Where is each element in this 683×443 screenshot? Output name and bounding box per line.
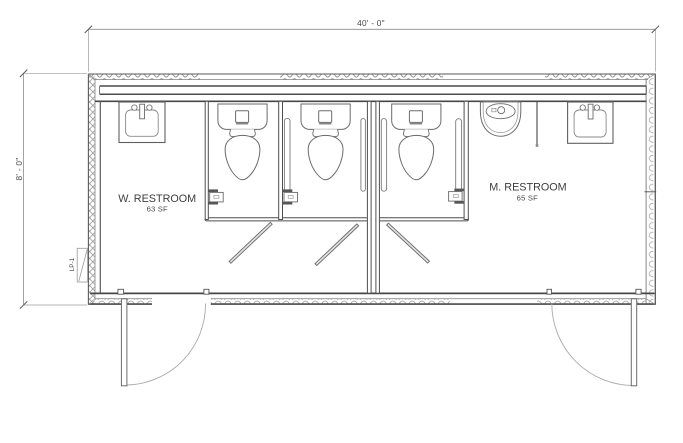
- svg-text:W. RESTROOM: W. RESTROOM: [118, 193, 196, 205]
- svg-text:LP-1: LP-1: [69, 257, 76, 271]
- svg-text:63 SF: 63 SF: [147, 205, 168, 214]
- svg-text:8' - 0": 8' - 0": [14, 158, 24, 181]
- svg-text:65 SF: 65 SF: [517, 193, 538, 202]
- svg-text:M. RESTROOM: M. RESTROOM: [489, 182, 566, 194]
- svg-text:40' - 0": 40' - 0": [357, 18, 385, 28]
